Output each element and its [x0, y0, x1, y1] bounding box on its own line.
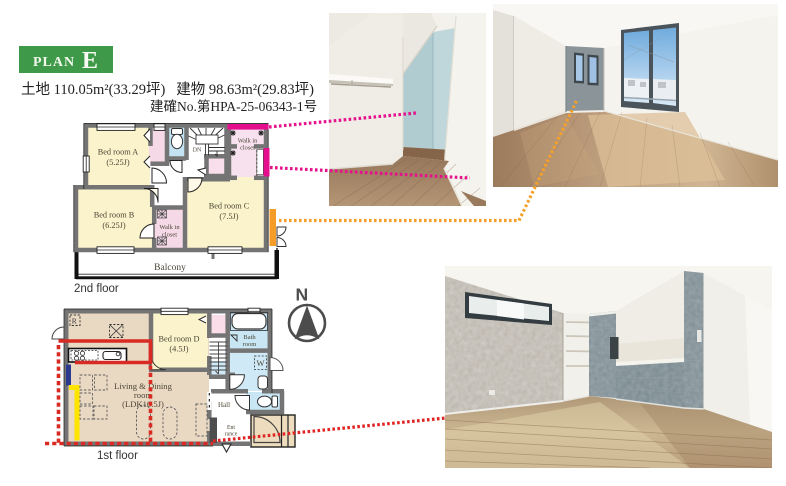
svg-text:E: E — [82, 48, 98, 74]
svg-text:closet: closet — [240, 145, 255, 152]
svg-text:Balcony: Balcony — [154, 263, 186, 273]
svg-text:Bath: Bath — [243, 334, 256, 341]
svg-text:DN: DN — [193, 148, 202, 154]
svg-text:Bed room A: Bed room A — [98, 148, 139, 157]
svg-text:(6.25J): (6.25J) — [102, 221, 126, 230]
svg-text:土地 110.05m²(33.29坪) 建物 98.63: 土地 110.05m²(33.29坪) 建物 98.63m²(29.83坪) — [21, 81, 314, 98]
svg-text:Walk in: Walk in — [238, 138, 258, 145]
svg-text:closet: closet — [162, 232, 177, 239]
svg-text:Hall: Hall — [218, 401, 230, 409]
svg-text:(LDK16.5J): (LDK16.5J) — [122, 399, 164, 409]
svg-text:(4.5J): (4.5J) — [169, 345, 188, 354]
svg-text:(7.5J): (7.5J) — [219, 212, 238, 221]
svg-text:Ent: Ent — [227, 425, 235, 431]
svg-text:1st floor: 1st floor — [97, 450, 138, 462]
svg-text:建確No.第HPA-25-06343-1号: 建確No.第HPA-25-06343-1号 — [150, 98, 317, 114]
svg-text:W: W — [256, 358, 264, 368]
svg-text:2nd floor: 2nd floor — [74, 283, 119, 295]
svg-text:Bed room D: Bed room D — [158, 335, 199, 344]
svg-text:N: N — [296, 285, 309, 305]
svg-text:Bed room C: Bed room C — [209, 202, 250, 211]
svg-text:PLAN: PLAN — [33, 55, 75, 70]
svg-text:rance: rance — [225, 432, 238, 438]
svg-text:room: room — [243, 341, 257, 348]
svg-text:Bed room B: Bed room B — [94, 211, 135, 220]
svg-text:(5.25J): (5.25J) — [106, 158, 130, 167]
svg-text:Walk in: Walk in — [159, 224, 180, 231]
svg-text:R: R — [72, 317, 77, 326]
